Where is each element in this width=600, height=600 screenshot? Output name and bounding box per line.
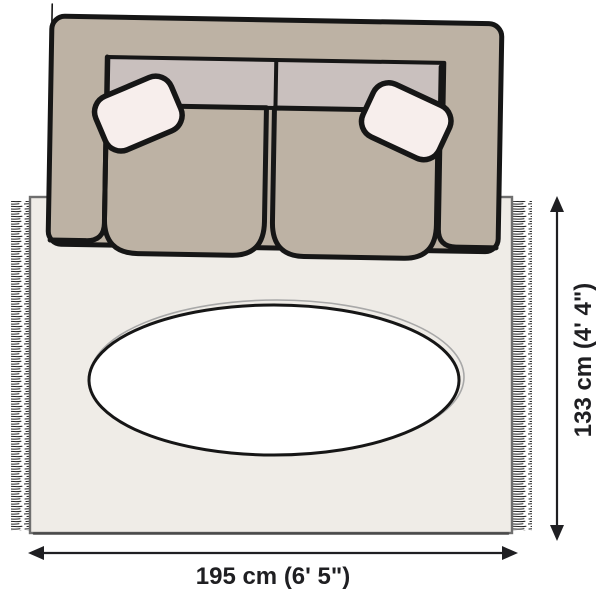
sofa-back-divider: [275, 60, 276, 108]
height-dimension-label: 133 cm (4' 4"): [570, 283, 597, 438]
arrowhead-left-icon: [28, 546, 44, 560]
height-dimension: 133 cm (4' 4"): [550, 196, 597, 541]
diagram-canvas: 133 cm (4' 4") 195 cm (6' 5"): [0, 0, 600, 600]
sofa: [48, 4, 502, 260]
arrowhead-right-icon: [502, 546, 518, 560]
width-dimension-label: 195 cm (6' 5"): [196, 563, 351, 590]
coffee-table-top: [89, 305, 459, 455]
rug-size-diagram: 133 cm (4' 4") 195 cm (6' 5"): [0, 0, 600, 600]
arrowhead-down-icon: [550, 525, 564, 541]
arrowhead-up-icon: [550, 196, 564, 212]
rug-fringe-right: [512, 201, 532, 531]
width-dimension: 195 cm (6' 5"): [28, 546, 518, 590]
rug-fringe-left: [11, 201, 30, 531]
